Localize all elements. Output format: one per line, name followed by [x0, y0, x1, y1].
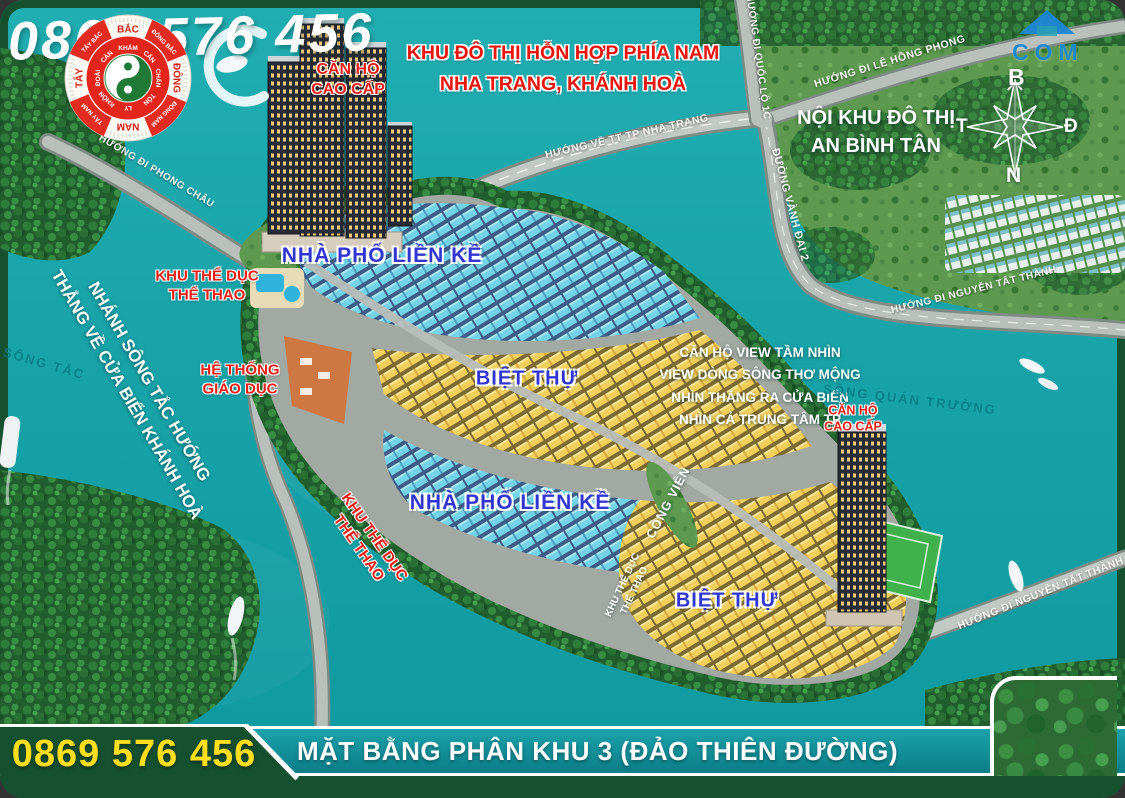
- footer-strip: [0, 776, 1125, 798]
- svg-text:LY: LY: [123, 104, 131, 111]
- forest-bottom-left: [0, 470, 260, 730]
- fengshui-wheel-logo: BẮC ĐÔNG NAM TÂY ĐÔNG BẮC ĐÔNG NAM TÂY N…: [62, 12, 194, 144]
- watermark: COM: [1012, 2, 1082, 66]
- banner-line2: NHA TRANG, KHÁNH HOÀ: [398, 69, 728, 100]
- svg-text:ĐOÀI: ĐOÀI: [93, 70, 102, 86]
- label-townhouse-1: NHÀ PHỐ LIỀN KỀ: [282, 243, 483, 269]
- label-sports-1: KHU THỂ DỤC THỂ THAO: [155, 267, 258, 305]
- compass-east: Đ: [1064, 116, 1078, 138]
- wheel-bac: BẮC: [117, 23, 139, 36]
- banner-line1: KHU ĐÔ THỊ HỖN HỢP PHÍA NAM: [398, 38, 728, 69]
- label-villa-1: BIỆT THỰ: [476, 367, 578, 392]
- label-townhouse-2: NHÀ PHỐ LIỀN KỀ: [410, 490, 611, 516]
- watermark-text: COM: [1012, 39, 1082, 66]
- svg-text:KHẢM: KHẢM: [118, 43, 138, 52]
- wheel-tay: TÂY: [73, 68, 86, 88]
- compass-south: N: [1006, 164, 1021, 188]
- label-noi-khu: NỘI KHU ĐÔ THỊ AN BÌNH TÂN: [796, 104, 956, 160]
- hotline-bottom: 0869 576 456: [10, 733, 258, 776]
- project-banner: KHU ĐÔ THỊ HỖN HỢP PHÍA NAM NHA TRANG, K…: [398, 38, 728, 100]
- wheel-dong: ĐÔNG: [171, 63, 184, 93]
- label-apartment-right: CĂN HỘ CAO CẤP: [824, 403, 882, 434]
- footer-greenery: [990, 676, 1117, 776]
- compass-north: B: [1008, 64, 1025, 91]
- house-icon: [1015, 2, 1079, 36]
- label-villa-2: BIỆT THỰ: [676, 589, 778, 614]
- wheel-nam: NAM: [117, 121, 140, 132]
- label-apartment-left: CĂN HỘ CAO CẤP: [311, 60, 385, 100]
- yin-yang-icon: [105, 55, 151, 101]
- rowhouses-cluster: [945, 195, 1125, 273]
- compass-west: T: [956, 116, 968, 138]
- label-education: HỆ THỐNG GIÁO DỤC: [200, 361, 279, 399]
- masterplan-poster: 0869 576 456 KHU ĐÔ THỊ HỖN HỢP PHÍA NAM…: [0, 0, 1125, 798]
